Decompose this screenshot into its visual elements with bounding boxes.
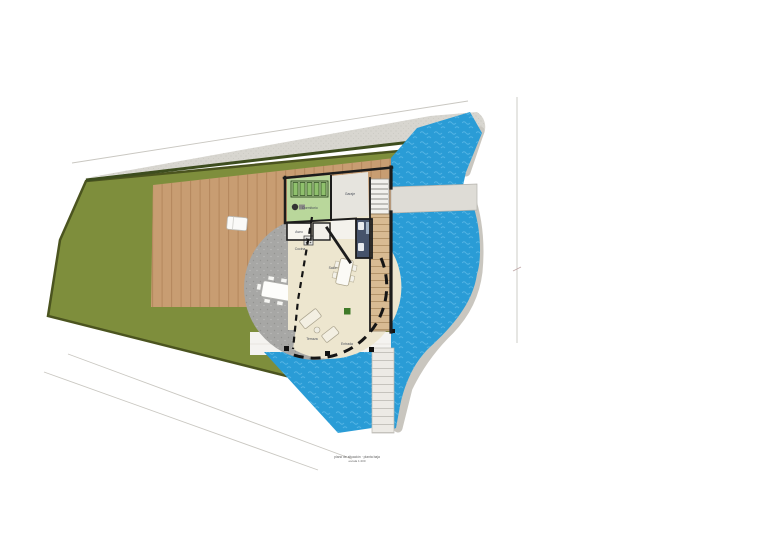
site-plan-drawing: Dormitorio Garaje Aseo Cocina Salón Terr… — [0, 0, 770, 550]
column-post-icon-1 — [284, 346, 289, 351]
lounge-chair-icon — [227, 216, 248, 231]
caption-line-2: escala 1:200 — [348, 459, 365, 463]
closet-floor — [313, 223, 330, 240]
bathroom-sink-icon — [358, 222, 364, 230]
bedroom-chair-icon — [292, 204, 298, 210]
pool-bridge — [391, 184, 477, 213]
site-plan-canvas: Dormitorio Garaje Aseo Cocina Salón Terr… — [0, 0, 770, 550]
hall-floor — [331, 219, 355, 239]
stair-column — [370, 179, 390, 331]
bedroom-label: Dormitorio — [302, 206, 318, 210]
garage-label: Garaje — [345, 192, 355, 196]
lower-pool-waves — [264, 352, 372, 433]
kitchen-label: Cocina — [295, 247, 306, 251]
bridge-surface — [391, 184, 477, 213]
plant-icon — [344, 308, 351, 315]
terrace-label: Terraza — [306, 337, 317, 341]
stepped-path-steps — [372, 350, 394, 433]
living-label: Salón — [329, 266, 338, 270]
boundary-line-bottom-2 — [44, 372, 318, 470]
caption-smallprint: plano de situación · planta baja escala … — [334, 455, 380, 463]
wc-label: Aseo — [295, 230, 303, 234]
column-post-icon-3 — [369, 347, 374, 352]
bed-icon — [291, 181, 328, 197]
bathroom-toilet-icon — [358, 243, 364, 251]
entry-label: Entrada — [341, 342, 353, 346]
